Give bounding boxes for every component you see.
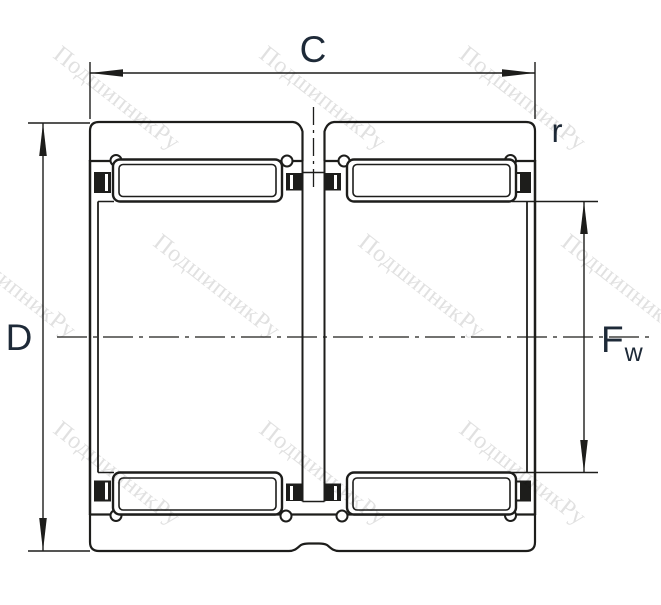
fw-subscript: w [624,339,644,367]
cage-pocket-circle [281,511,292,522]
needle-roller-top-right [353,165,510,197]
rib-slot [105,483,108,500]
rib-slot [334,175,337,189]
needle-roller-top-left [119,165,276,197]
rib-block-bottom-center-left [286,484,303,502]
rib-slot [290,486,293,500]
rib-block-top-center-right [325,173,342,191]
dimension-d-label: D [6,317,33,358]
rib-slot [517,174,520,191]
fw-main: F [601,319,624,360]
rib-block-top-left [94,172,111,193]
drawing-canvas: C D Fw r ПодшипникРу ПодшипникРу Подшипн… [0,0,661,605]
rib-slot [290,175,293,189]
bearing-cross-section-drawing: C D Fw r ПодшипникРу ПодшипникРу Подшипн… [0,0,661,605]
cage-pocket-circle [337,511,348,522]
dimension-c-label: C [300,29,327,70]
rib-slot [105,174,108,191]
cage-pocket-circle [282,156,293,167]
rib-block-top-center-left [286,173,303,191]
